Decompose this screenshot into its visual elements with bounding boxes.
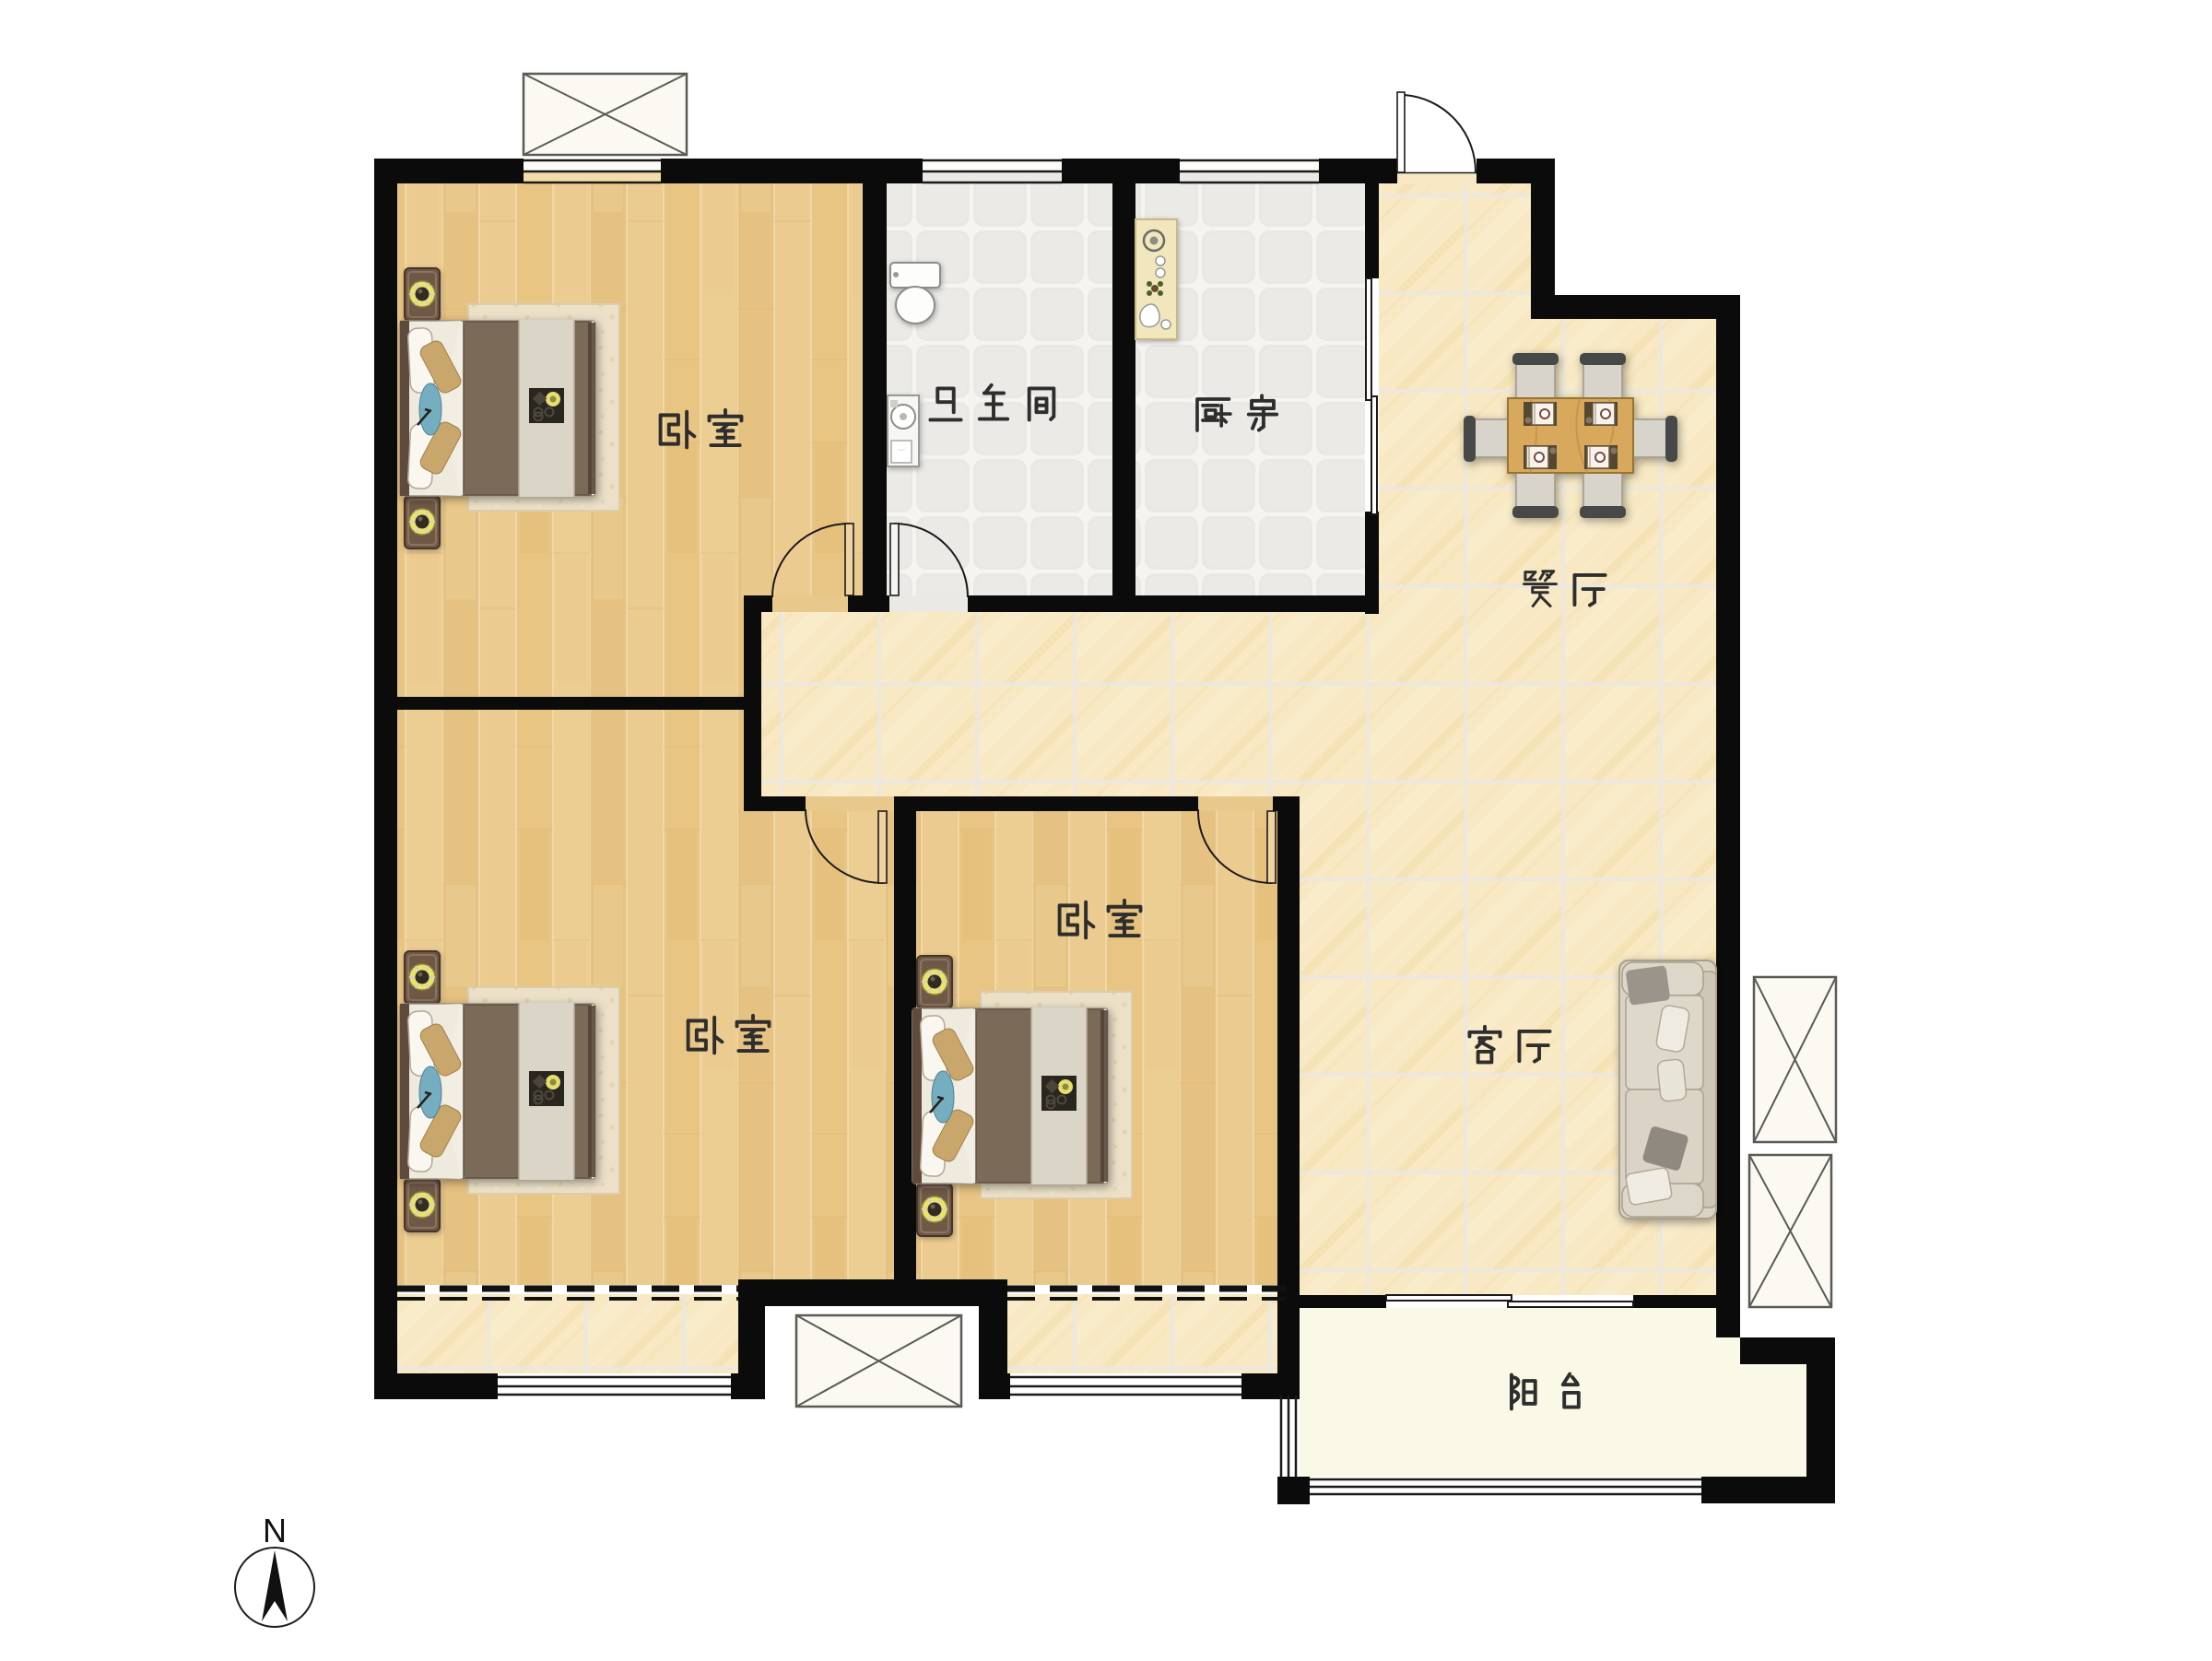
- svg-text:N: N: [263, 1512, 287, 1549]
